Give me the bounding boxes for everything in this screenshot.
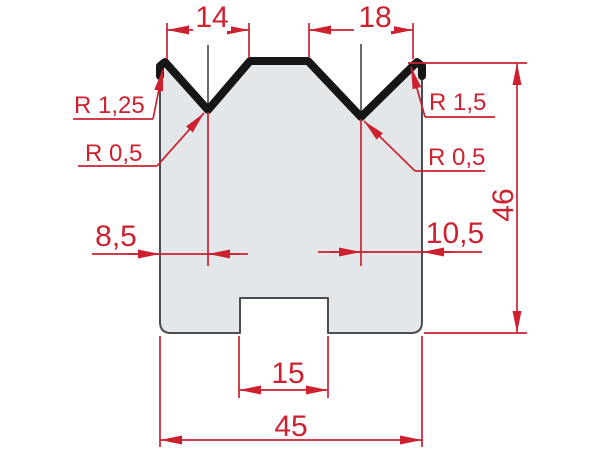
drawing-canvas: 14 18 R 1,25 R 0,5 R 1,5 [0,0,600,450]
radius-label-groove-left: R 0,5 [85,140,142,167]
radius-label-top-left: R 1,25 [74,92,145,119]
radius-label-top-right: R 1,5 [429,89,486,116]
dim-total-width: 45 [160,336,422,447]
leader-radius-top-left: R 1,25 [73,69,163,119]
dim-label-right-v-width: 18 [358,1,391,34]
dim-label-offset-right: 10,5 [426,217,484,250]
dim-label-offset-left: 8,5 [95,220,137,253]
dim-label-slot-width: 15 [271,357,304,390]
radius-label-groove-right: R 0,5 [428,144,485,171]
die-body [160,44,422,333]
technical-drawing: 14 18 R 1,25 R 0,5 R 1,5 [0,0,600,450]
dim-label-left-v-width: 14 [195,1,228,34]
dim-slot-width: 15 [239,336,328,398]
dim-label-total-width: 45 [274,410,307,443]
dim-label-height: 46 [487,188,520,221]
